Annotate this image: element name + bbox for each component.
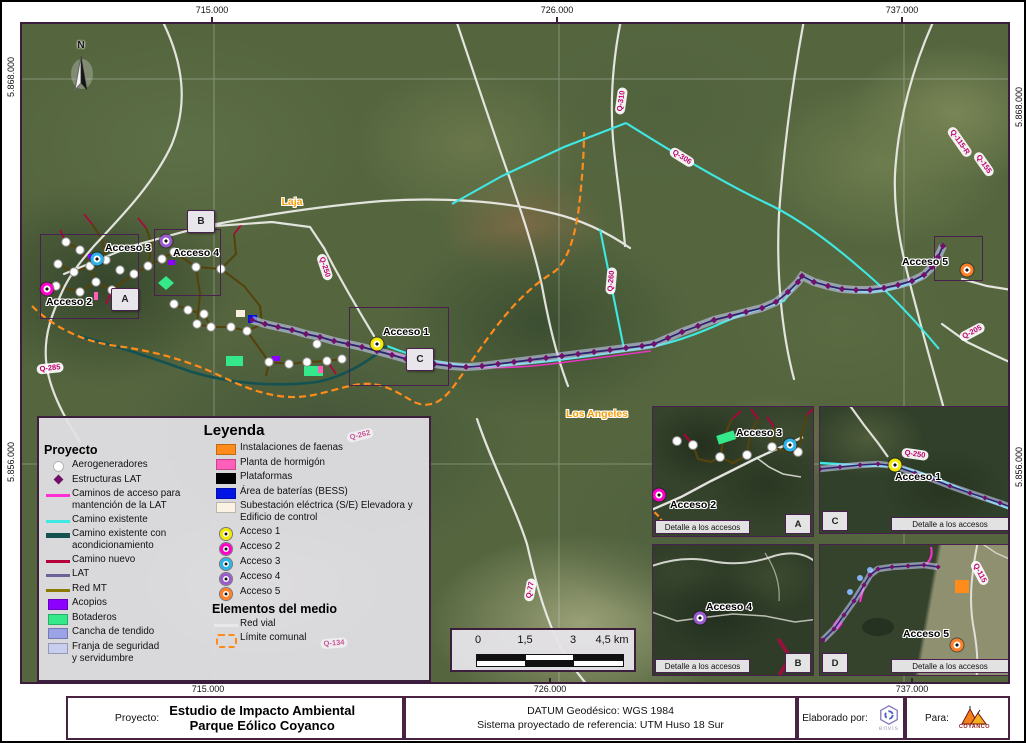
frame-tick (901, 17, 903, 22)
legend-item-label: Acceso 1 (240, 526, 280, 538)
inset-caption: Detalle a los accesos (891, 517, 1009, 531)
legend-item-label: Botaderos (72, 612, 117, 624)
access-symbol (212, 528, 240, 540)
legend-item-label: Área de baterías (BESS) (240, 486, 348, 498)
made-by-label: Elaborado por: (802, 713, 868, 724)
line-symbol (44, 556, 72, 563)
acceso-label: Acceso 4 (173, 247, 219, 259)
legend-item-label: LAT (72, 568, 89, 580)
coord-label-right: 5.856.000 (1014, 447, 1024, 487)
access-symbol (212, 588, 240, 600)
coyanco-logo-icon (959, 705, 989, 725)
inset-detail-c: Detalle a los accesos C Q-250Acceso 1 (819, 406, 1010, 534)
acceso-label: Acceso 1 (895, 471, 941, 483)
footer-datum-box: DATUM Geodésico: WGS 1984 Sistema proyec… (404, 696, 797, 740)
acceso-label: Acceso 3 (736, 427, 782, 439)
frame-badge-c: C (406, 348, 434, 371)
acceso-marker (694, 612, 707, 625)
map-canvas: N Detalle a los accesos A Acceso 2Acceso… (20, 22, 1010, 684)
legend-item-label: Acceso 4 (240, 571, 280, 583)
scale-bar: 01,534,5 km (450, 628, 636, 672)
legend-item-label: Red MT (72, 583, 107, 595)
inset-d-layers (820, 545, 1010, 676)
diamond-symbol (44, 476, 72, 483)
inset-detail-d: Detalle a los accesos D Q-115Acceso 5 (819, 544, 1010, 676)
botadero-area (226, 356, 243, 366)
rect-symbol (212, 502, 240, 513)
scalebar-number: 1,5 (517, 634, 532, 646)
city-label: Los Angeles (566, 408, 628, 420)
acceso-label: Acceso 2 (46, 296, 92, 308)
legend-item: Acceso 2 (212, 541, 424, 555)
subestacion-area (236, 310, 245, 317)
dashed-rect-symbol (212, 634, 240, 648)
legend-column-project: ProyectoAerogeneradoresEstructuras LATCa… (44, 441, 212, 666)
inset-caption-text: Detalle a los accesos (665, 523, 741, 532)
rect-symbol (44, 614, 72, 625)
legend-item-label: Red vial (240, 618, 275, 630)
legend-item-label: Planta de hormigón (240, 457, 325, 469)
dot-symbol (44, 461, 72, 472)
line-symbol (44, 516, 72, 523)
footer-author-box: Elaborado por: envis (797, 696, 905, 740)
rect-symbol (44, 599, 72, 610)
north-arrow-icon (66, 54, 96, 94)
acceso-label: Acceso 1 (383, 326, 429, 338)
line-symbol (44, 570, 72, 577)
acceso-marker (961, 264, 974, 277)
legend-item: Franja de seguridad y servidumbre (44, 641, 212, 666)
acceso-marker (91, 253, 104, 266)
legend-item-label: Instalaciones de faenas (240, 442, 343, 454)
legend-item: Botaderos (44, 612, 212, 626)
inset-caption-text: Detalle a los accesos (912, 662, 988, 671)
coord-label-bottom: 726.000 (534, 684, 567, 694)
inset-badge: D (822, 653, 848, 673)
legend-item: Acceso 5 (212, 586, 424, 600)
legend-item: Aerogeneradores (44, 459, 212, 473)
datum-line1: DATUM Geodésico: WGS 1984 (477, 704, 724, 718)
acceso-label: Acceso 2 (670, 499, 716, 511)
legend-item: Red MT (44, 583, 212, 597)
map-sheet: N Detalle a los accesos A Acceso 2Acceso… (0, 0, 1026, 743)
acceso-marker (951, 639, 964, 652)
coord-label-top: 726.000 (541, 5, 574, 15)
rect-symbol (44, 628, 72, 639)
legend-item-label: Cancha de tendido (72, 626, 154, 638)
legend-item: Camino nuevo (44, 554, 212, 568)
legend-item-label: Plataformas (240, 471, 292, 483)
legend-column-elements: Instalaciones de faenasPlanta de hormigó… (212, 441, 424, 666)
frame-badge-a: A (111, 288, 139, 311)
legend-item: Camino existente con acondicionamiento (44, 528, 212, 553)
inset-badge: B (785, 653, 811, 673)
frame-badge-b: B (187, 210, 215, 233)
legend-item: Planta de hormigón (212, 457, 424, 471)
legend-item: Instalaciones de faenas (212, 442, 424, 456)
legend-item-label: Aerogeneradores (72, 459, 148, 471)
access-symbol (212, 543, 240, 555)
legend-item: Acopios (44, 597, 212, 611)
coord-label-top: 737.000 (886, 5, 919, 15)
rect-symbol (44, 643, 72, 654)
acceso-marker (653, 489, 666, 502)
project-label: Proyecto: (115, 712, 159, 724)
coord-label-bottom: 737.000 (896, 684, 929, 694)
project-title: Estudio de Impacto Ambiental Parque Eóli… (169, 703, 355, 733)
legend-section-elementos: Elementos del medio (212, 602, 424, 616)
inset-caption: Detalle a los accesos (655, 659, 750, 673)
legend-item: Caminos de acceso para mantención de la … (44, 488, 212, 513)
legend-item: Cancha de tendido (44, 626, 212, 640)
north-label: N (77, 40, 84, 51)
legend-section-proyecto: Proyecto (44, 443, 212, 457)
rect-symbol (212, 473, 240, 484)
faena-area (955, 580, 969, 593)
road-label: Q-134 (320, 637, 347, 648)
inset-detail-a: Detalle a los accesos A Acceso 2Acceso 3 (652, 406, 814, 537)
rect-symbol (212, 444, 240, 455)
legend-item: Estructuras LAT (44, 474, 212, 488)
envis-logo-text: envis (879, 726, 899, 733)
legend-item-label: Franja de seguridad y servidumbre (72, 641, 159, 666)
legend-item: Subestación eléctrica (S/E) Elevadora y … (212, 500, 424, 525)
acceso-label: Acceso 3 (105, 242, 151, 254)
legend-item: Acceso 4 (212, 571, 424, 585)
legend-item: Acceso 3 (212, 556, 424, 570)
coord-label-bottom: 715.000 (192, 684, 225, 694)
footer-project-box: Proyecto: Estudio de Impacto Ambiental P… (66, 696, 404, 740)
project-title-line1: Estudio de Impacto Ambiental (169, 703, 355, 718)
coord-label-left: 5.856.000 (6, 442, 16, 482)
legend-item-label: Camino nuevo (72, 554, 135, 566)
acceso-marker (160, 235, 173, 248)
legend-item-label: Acceso 2 (240, 541, 280, 553)
frame-tick (211, 17, 213, 22)
inset-badge: A (785, 514, 811, 534)
scalebar-number: 4,5 km (595, 634, 628, 646)
acceso-label: Acceso 4 (706, 601, 752, 613)
datum-line2: Sistema proyectado de referencia: UTM Hu… (477, 718, 724, 732)
legend-item: Plataformas (212, 471, 424, 485)
inset-caption-text: Detalle a los accesos (665, 662, 741, 671)
coyanco-logo-text: COYANCO (959, 725, 990, 731)
line-thick-symbol (44, 530, 72, 538)
acceso-marker (784, 439, 797, 452)
inset-caption: Detalle a los accesos (891, 659, 1009, 673)
coord-label-right: 5.868.000 (1014, 87, 1024, 127)
legend: Leyenda ProyectoAerogeneradoresEstructur… (37, 416, 431, 682)
legend-item: Acceso 1 (212, 526, 424, 540)
frame-tick (556, 17, 558, 22)
legend-item-label: Límite comunal (240, 632, 306, 644)
wind-turbines (673, 437, 803, 462)
legend-item-label: Caminos de acceso para mantención de la … (72, 488, 180, 513)
legend-item-label: Estructuras LAT (72, 474, 142, 486)
envis-logo-icon (878, 704, 900, 726)
inset-caption-text: Detalle a los accesos (912, 520, 988, 529)
legend-item-label: Subestación eléctrica (S/E) Elevadora y … (240, 500, 413, 525)
legend-item-label: Acceso 3 (240, 556, 280, 568)
legend-item-label: Camino existente (72, 514, 148, 526)
line-symbol (44, 585, 72, 592)
coyanco-logo: COYANCO (959, 705, 990, 731)
planta-hormigon-area (318, 366, 323, 373)
rect-symbol (212, 459, 240, 470)
for-label: Para: (925, 713, 949, 724)
envis-logo: envis (878, 704, 900, 733)
coord-label-left: 5.868.000 (6, 57, 16, 97)
legend-item: Área de baterías (BESS) (212, 486, 424, 500)
footer-client-box: Para: COYANCO (905, 696, 1010, 740)
extent-box-c (349, 307, 449, 386)
legend-item: Camino existente (44, 514, 212, 528)
legend-item: Límite comunal (212, 632, 424, 648)
inset-detail-b: Detalle a los accesos B Acceso 4 (652, 544, 814, 676)
legend-item-label: Acceso 5 (240, 586, 280, 598)
scalebar-number: 3 (570, 634, 576, 646)
acceso-label: Acceso 5 (903, 628, 949, 640)
inset-caption: Detalle a los accesos (655, 520, 750, 534)
project-title-line2: Parque Eólico Coyanco (169, 718, 355, 733)
city-label: Laja (281, 196, 302, 208)
scalebar-number: 0 (475, 634, 481, 646)
access-symbol (212, 573, 240, 585)
coord-label-top: 715.000 (196, 5, 229, 15)
legend-item-label: Camino existente con acondicionamiento (72, 528, 166, 553)
acceso-marker (41, 283, 54, 296)
camino-existente (387, 123, 939, 366)
access-symbol (212, 558, 240, 570)
legend-item-label: Acopios (72, 597, 107, 609)
inset-badge: C (822, 511, 848, 531)
rect-symbol (212, 488, 240, 499)
acceso-marker (371, 338, 384, 351)
line-symbol (212, 620, 240, 627)
line-symbol (44, 490, 72, 497)
scale-bar-segments (476, 654, 624, 667)
legend-item: LAT (44, 568, 212, 582)
acceso-marker (889, 459, 902, 472)
acceso-label: Acceso 5 (902, 256, 948, 268)
datum-info: DATUM Geodésico: WGS 1984 Sistema proyec… (477, 704, 724, 732)
legend-item: Red vial (212, 618, 424, 632)
